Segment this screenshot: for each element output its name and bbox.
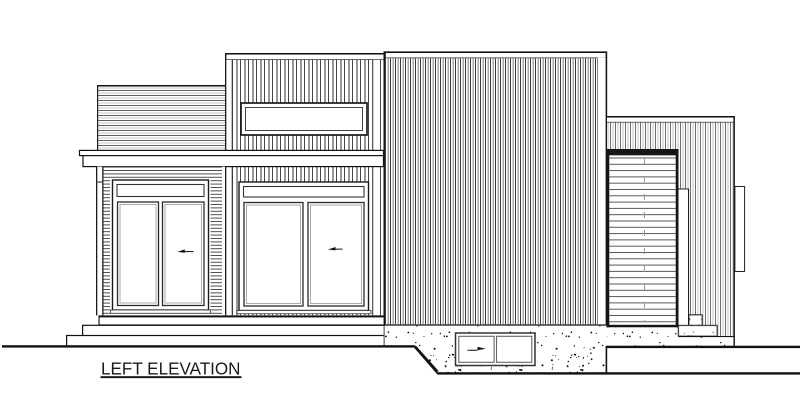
svg-text:LEFT ELEVATION: LEFT ELEVATION — [101, 359, 241, 379]
